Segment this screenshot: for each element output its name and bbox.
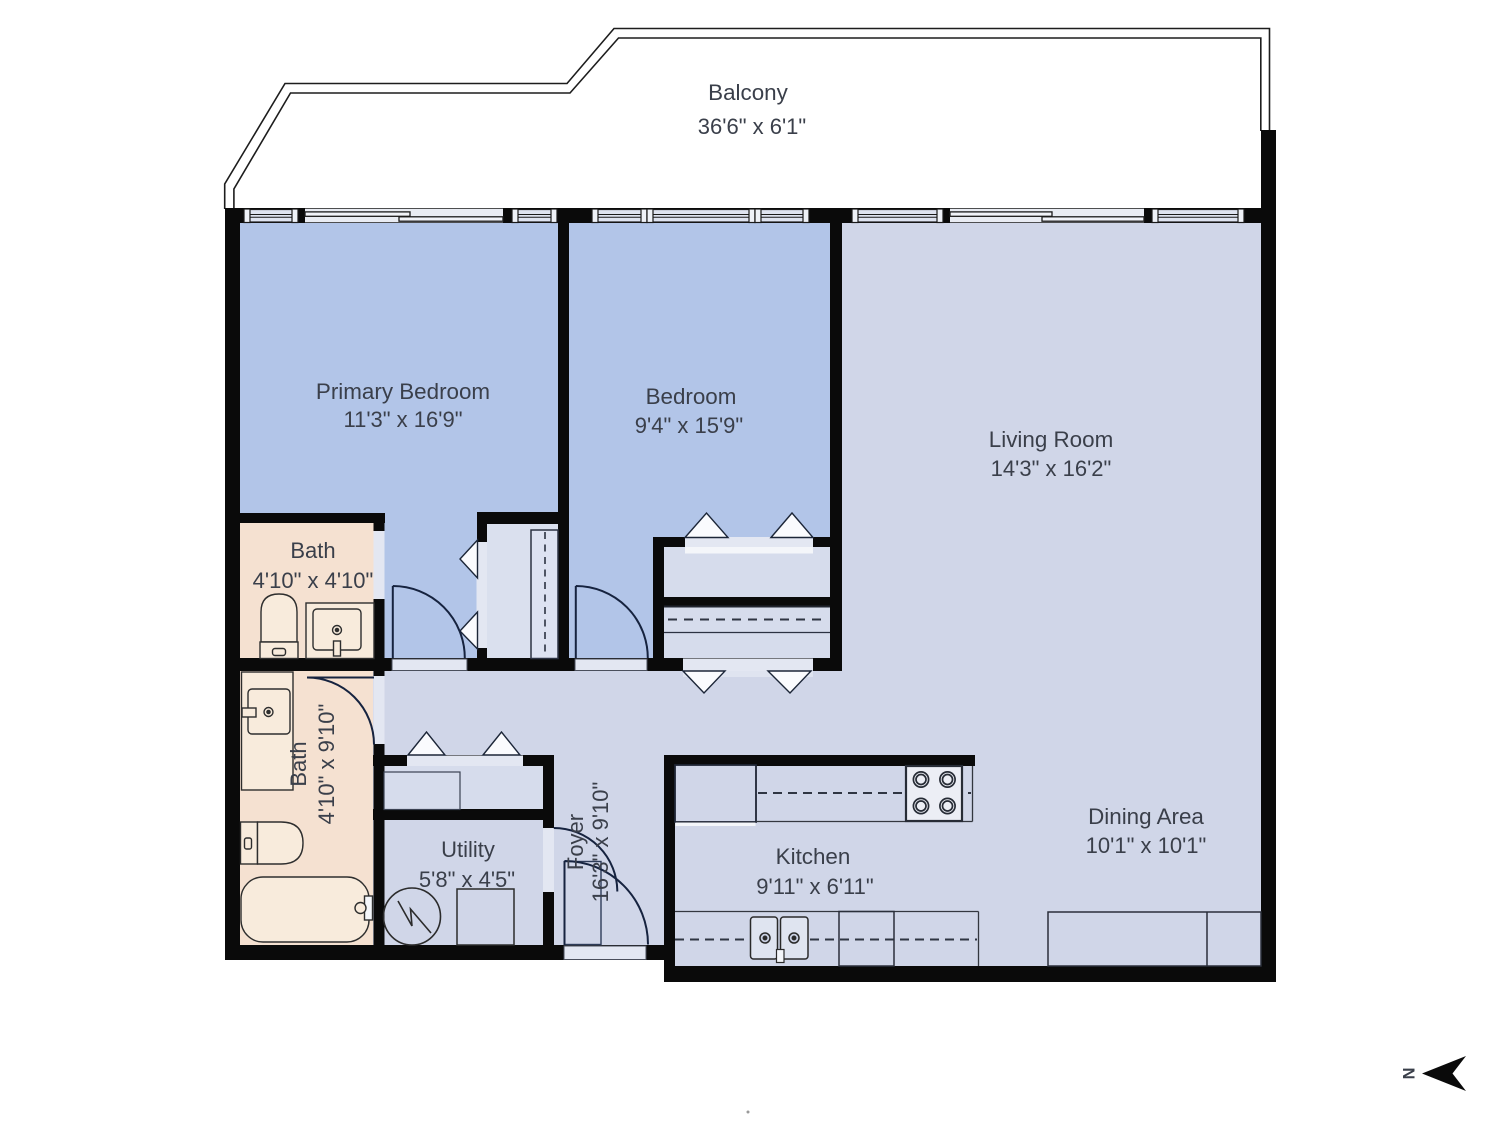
svg-text:4'10" x 4'10": 4'10" x 4'10" bbox=[253, 568, 374, 593]
svg-text:N: N bbox=[1399, 1068, 1417, 1080]
svg-text:11'3" x 16'9": 11'3" x 16'9" bbox=[343, 407, 462, 432]
svg-text:Kitchen: Kitchen bbox=[776, 844, 851, 869]
svg-text:36'6" x 6'1": 36'6" x 6'1" bbox=[698, 114, 806, 139]
svg-text:14'3" x 16'2": 14'3" x 16'2" bbox=[991, 456, 1112, 481]
svg-text:Balcony: Balcony bbox=[708, 80, 788, 105]
svg-text:Bath: Bath bbox=[286, 741, 311, 786]
svg-text:16'3" x 9'10": 16'3" x 9'10" bbox=[588, 782, 613, 903]
svg-text:5'8" x 4'5": 5'8" x 4'5" bbox=[419, 867, 515, 892]
svg-text:Living Room: Living Room bbox=[989, 427, 1113, 452]
svg-text:9'4" x 15'9": 9'4" x 15'9" bbox=[635, 413, 743, 438]
svg-text:Dining Area: Dining Area bbox=[1088, 804, 1204, 829]
svg-text:Primary Bedroom: Primary Bedroom bbox=[316, 379, 490, 404]
svg-text:Foyer: Foyer bbox=[563, 814, 588, 870]
svg-text:10'1" x 10'1": 10'1" x 10'1" bbox=[1086, 833, 1207, 858]
svg-text:Bedroom: Bedroom bbox=[646, 384, 737, 409]
svg-text:9'11" x 6'11": 9'11" x 6'11" bbox=[756, 874, 873, 899]
svg-text:Utility: Utility bbox=[441, 837, 495, 862]
svg-text:4'10" x 9'10": 4'10" x 9'10" bbox=[314, 704, 339, 825]
svg-text:Bath: Bath bbox=[290, 538, 335, 563]
